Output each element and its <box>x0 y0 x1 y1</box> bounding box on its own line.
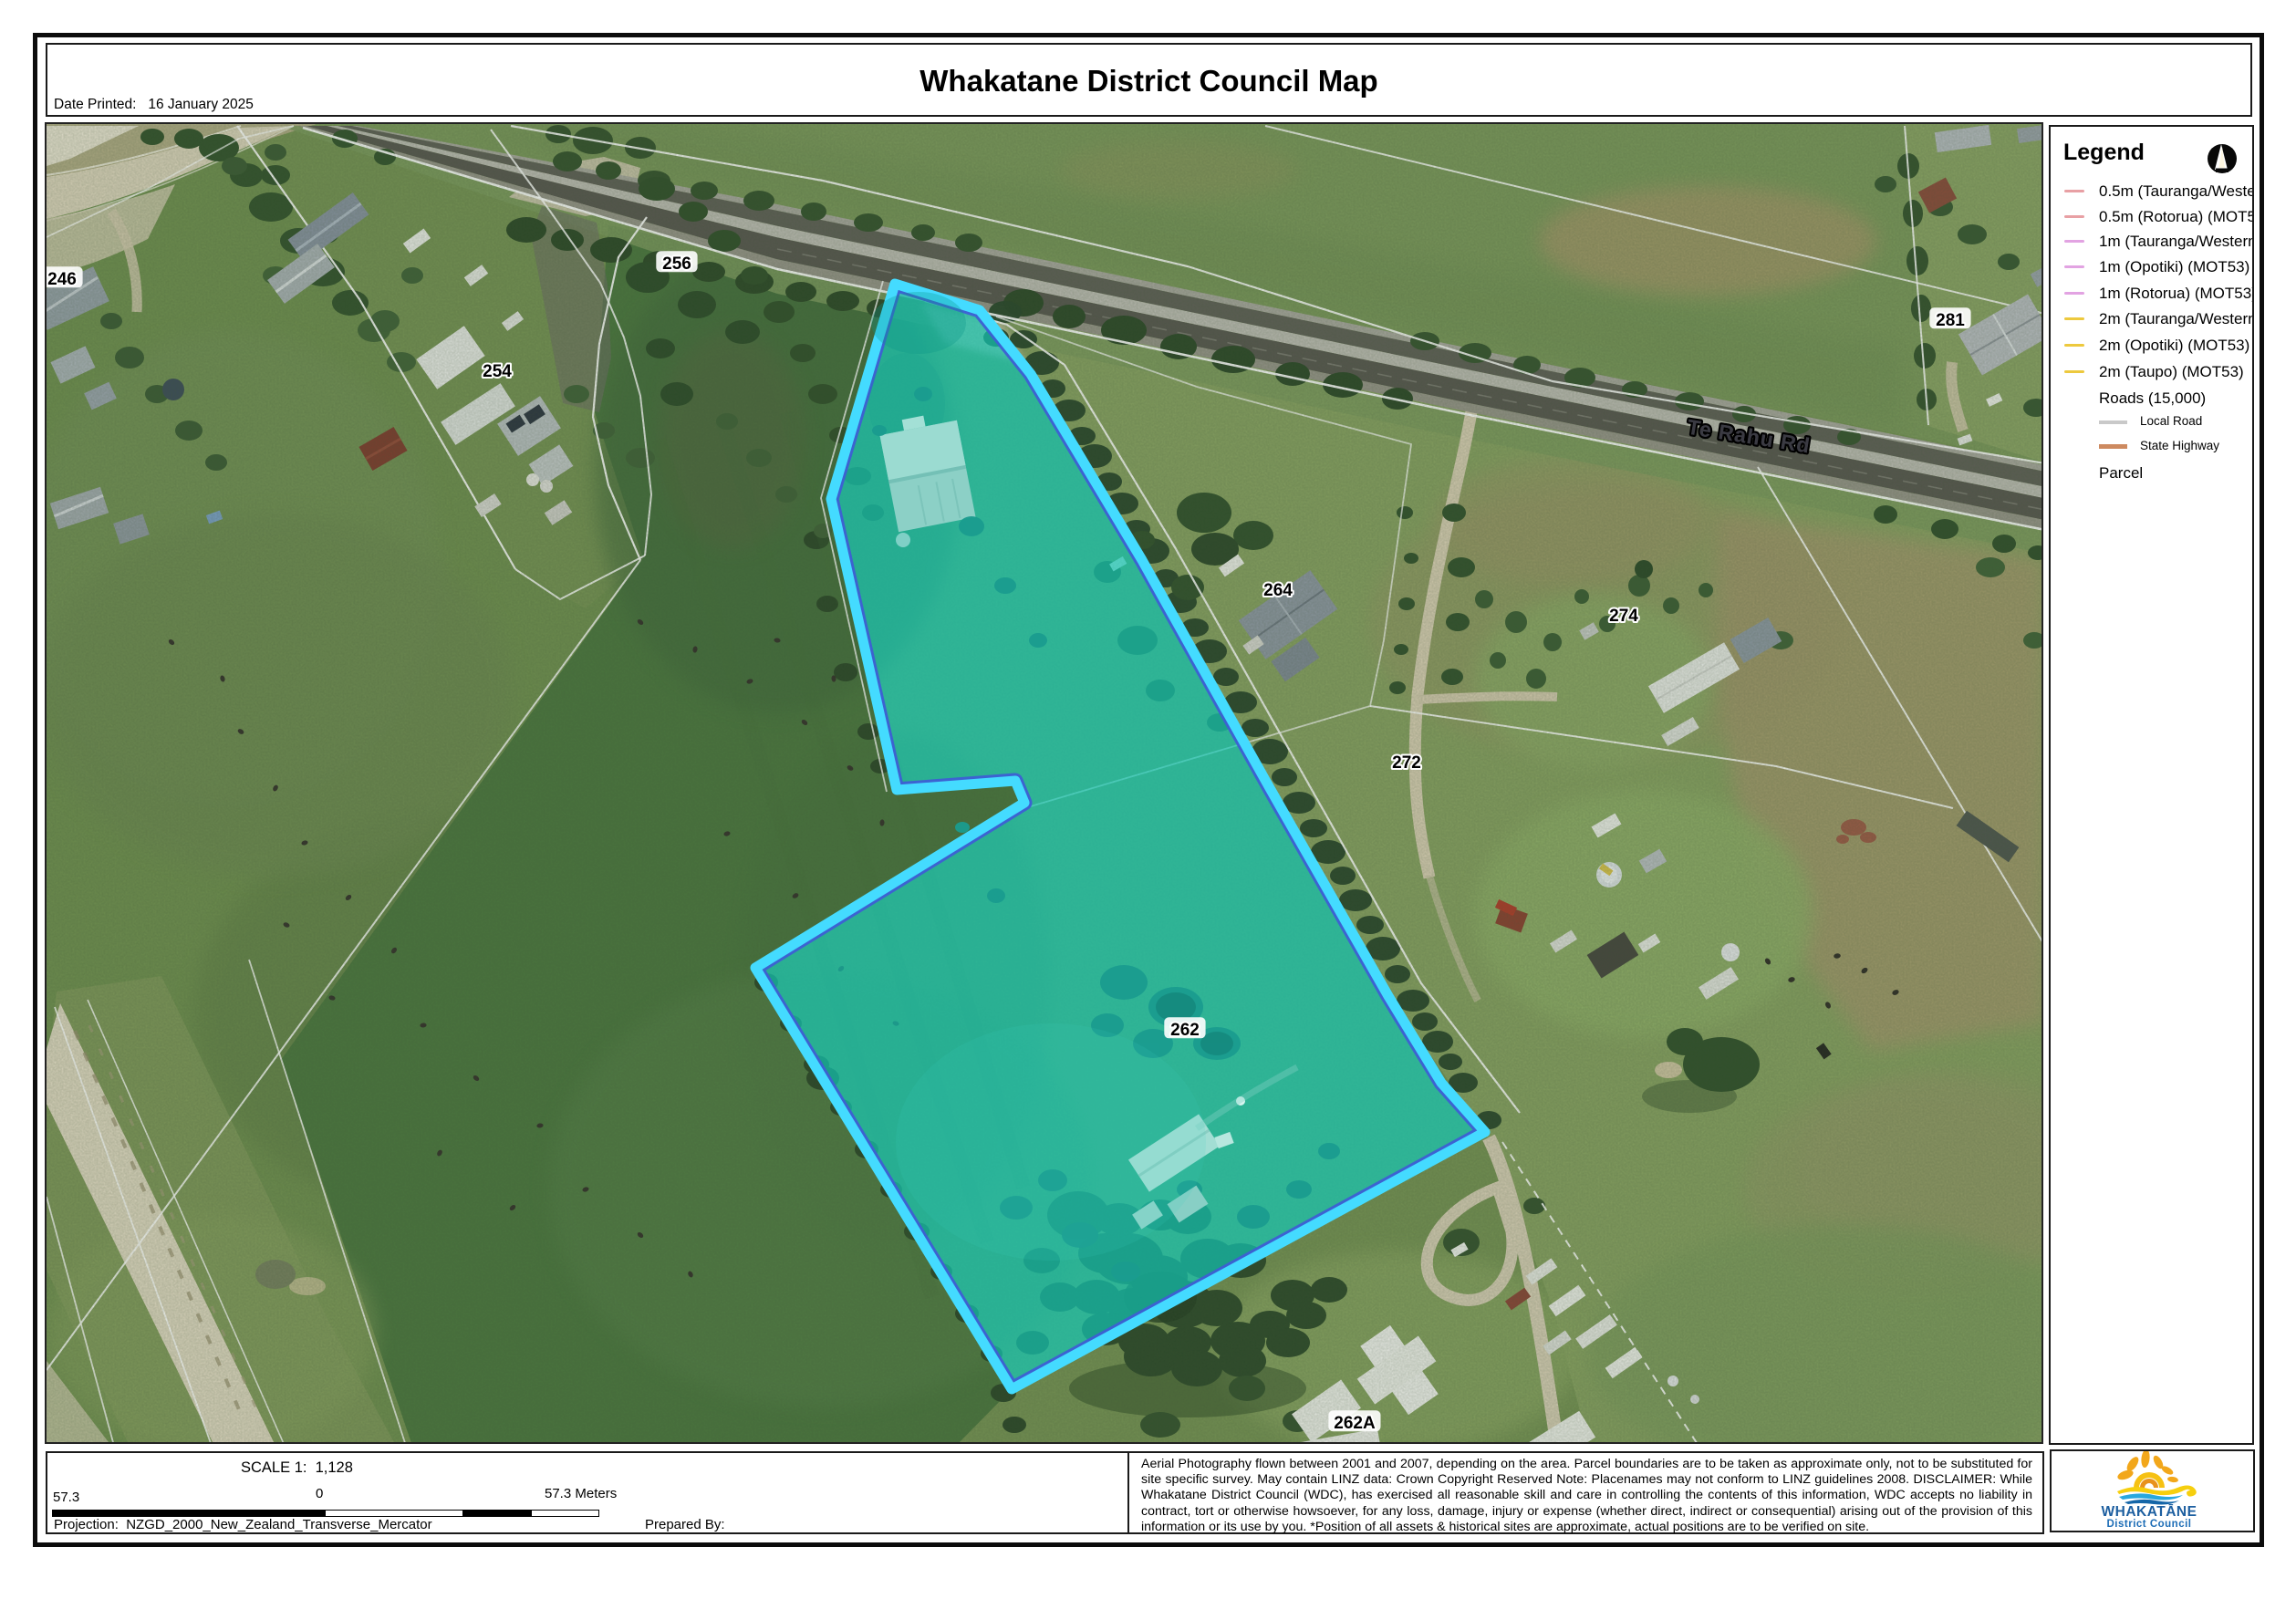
svg-text:262A: 262A <box>1334 1414 1376 1433</box>
svg-text:281: 281 <box>1936 311 1965 330</box>
svg-text:WHAKATĀNE: WHAKATĀNE <box>2102 1504 2197 1520</box>
svg-text:256: 256 <box>662 254 691 274</box>
svg-text:District Council: District Council <box>2107 1519 2192 1530</box>
svg-text:264: 264 <box>1263 581 1293 600</box>
svg-text:262: 262 <box>1170 1021 1200 1040</box>
svg-text:272: 272 <box>1392 753 1421 773</box>
svg-text:254: 254 <box>483 362 512 381</box>
svg-text:274: 274 <box>1609 607 1638 626</box>
svg-text:246: 246 <box>47 270 77 289</box>
